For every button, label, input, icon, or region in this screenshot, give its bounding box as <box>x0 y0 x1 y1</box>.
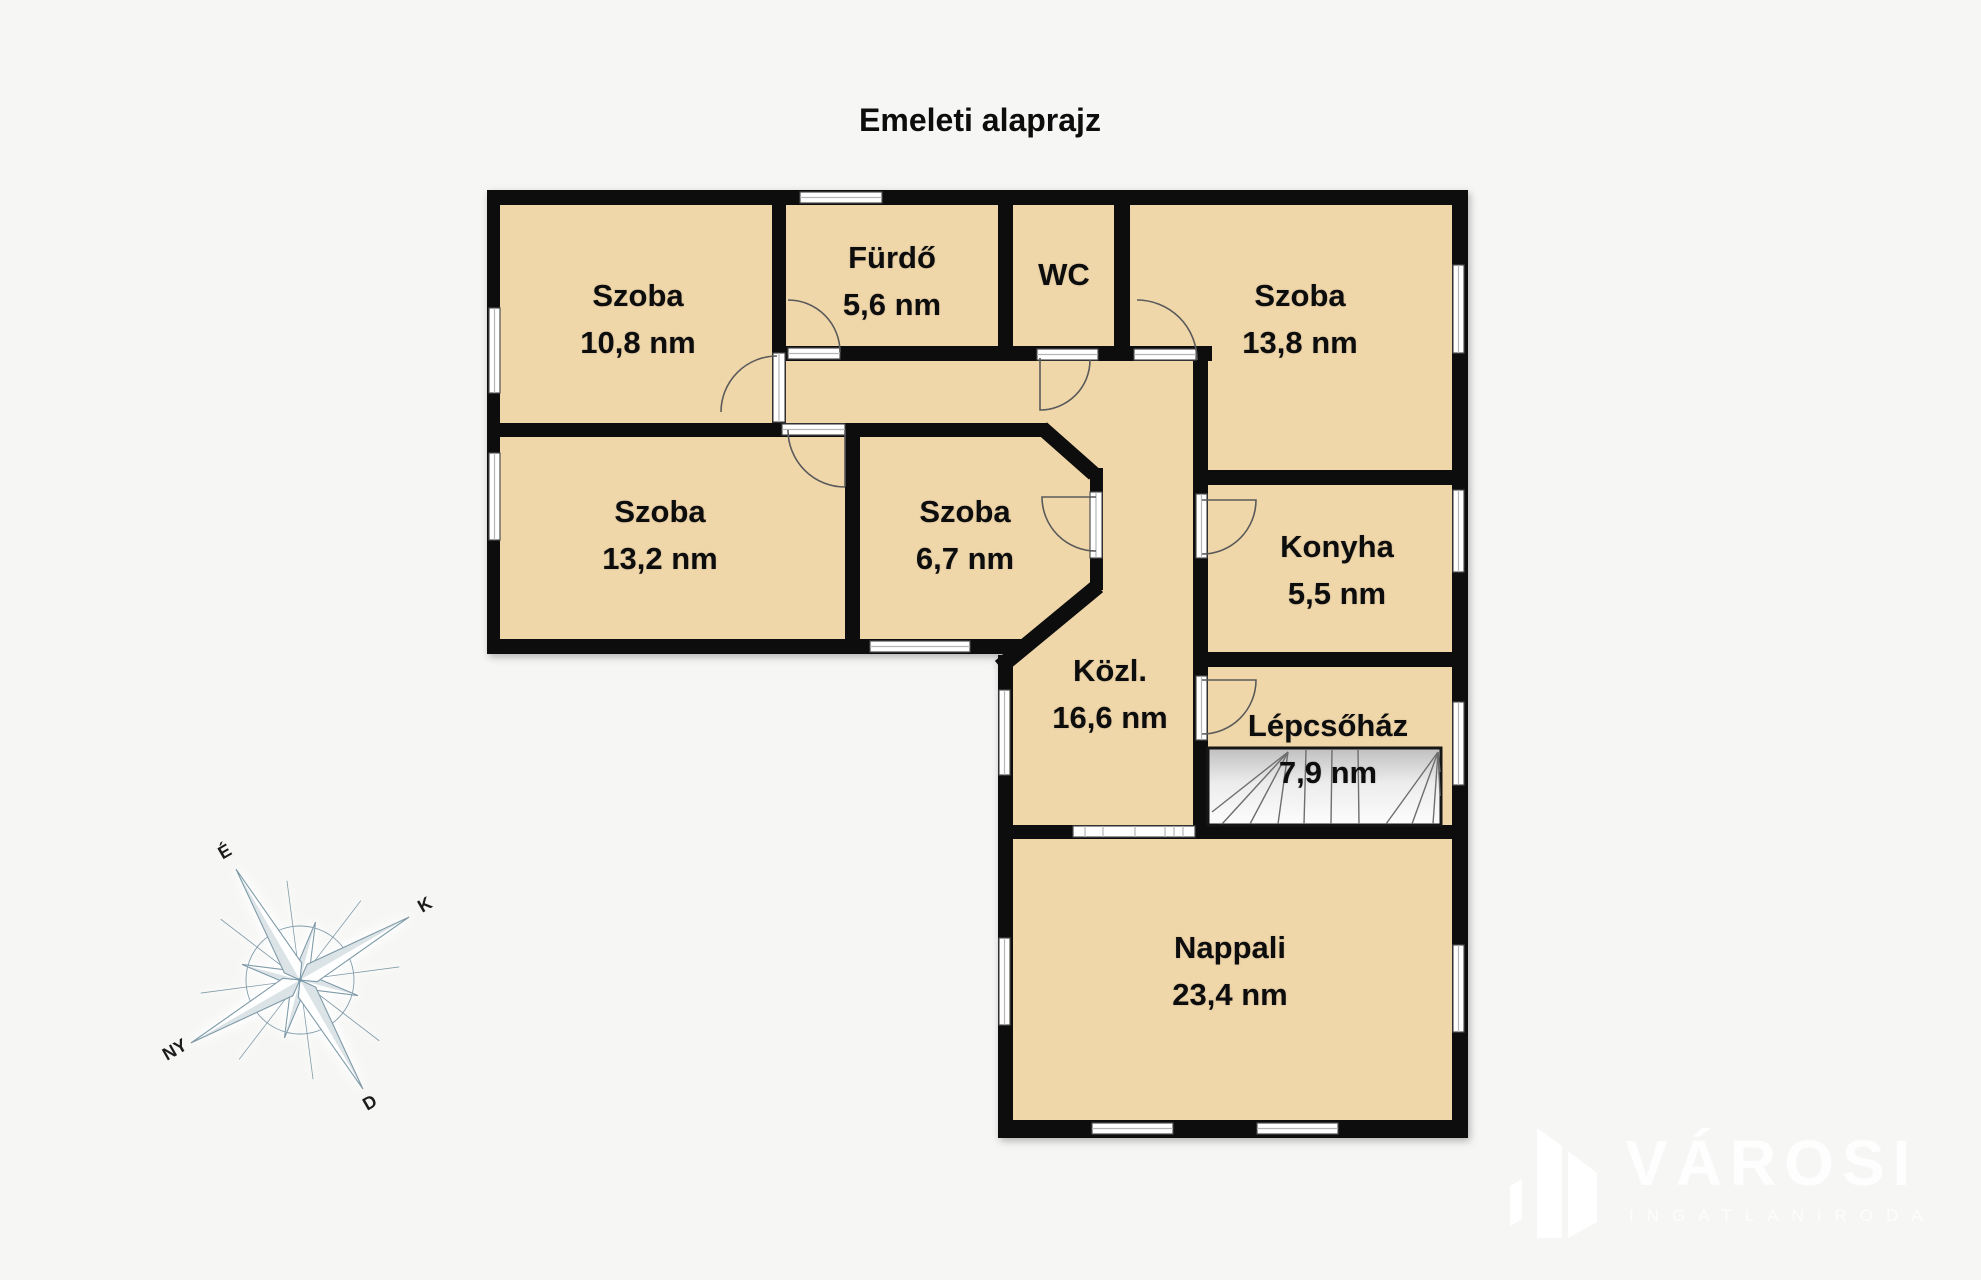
room-name: Szoba <box>916 488 1014 535</box>
room-name: Közl. <box>1052 647 1167 694</box>
compass-rose <box>127 806 472 1152</box>
door-szoba132 <box>782 424 845 435</box>
window-bottom-nappali-1 <box>1092 1123 1173 1134</box>
room-label-szoba-6-7: Szoba 6,7 nm <box>916 488 1014 582</box>
window-left-szoba132 <box>489 453 500 540</box>
room-name: Nappali <box>1172 924 1287 971</box>
room-label-furdo: Fürdő 5,6 nm <box>843 234 941 328</box>
door-szoba67 <box>1090 492 1102 558</box>
room-name: Lépcsőház <box>1248 702 1408 749</box>
door-konyha <box>1196 494 1207 558</box>
room-name: Szoba <box>1242 272 1357 319</box>
window-bottom-szoba67 <box>870 641 970 652</box>
room-area: 23,4 nm <box>1172 971 1287 1018</box>
room-name: Szoba <box>580 272 695 319</box>
room-name: Konyha <box>1280 523 1394 570</box>
room-label-nappali: Nappali 23,4 nm <box>1172 924 1287 1018</box>
room-area: 7,9 nm <box>1248 749 1408 796</box>
room-label-wc: WC <box>1038 251 1090 298</box>
window-right-nappali <box>1453 945 1464 1032</box>
watermark-subtitle: INGATLANIRODA <box>1629 1206 1936 1226</box>
door-szoba138 <box>1134 349 1196 360</box>
window-bottom-nappali-2 <box>1257 1123 1338 1134</box>
door-furdo <box>788 348 840 359</box>
room-area: 5,5 nm <box>1280 570 1394 617</box>
room-label-konyha: Konyha 5,5 nm <box>1280 523 1394 617</box>
room-name: Szoba <box>602 488 717 535</box>
floorplan-drawing <box>0 0 1981 1280</box>
room-label-kozlekedo: Közl. 16,6 nm <box>1052 647 1167 741</box>
window-top-furdo <box>800 192 882 203</box>
room-name: Fürdő <box>843 234 941 281</box>
door-lepcsohaz <box>1196 676 1207 740</box>
room-label-szoba-10-8: Szoba 10,8 nm <box>580 272 695 366</box>
window-right-lepcsohaz <box>1453 702 1464 785</box>
room-area: 13,8 nm <box>1242 319 1357 366</box>
glazed-partition <box>1073 826 1195 837</box>
room-area: 6,7 nm <box>916 535 1014 582</box>
door-szoba108 <box>773 353 785 422</box>
room-label-szoba-13-8: Szoba 13,8 nm <box>1242 272 1357 366</box>
page-title: Emeleti alaprajz <box>859 102 1101 139</box>
window-left-nappali <box>999 938 1010 1025</box>
window-right-konyha <box>1453 490 1464 572</box>
room-label-lepcsohaz: Lépcsőház 7,9 nm <box>1248 702 1408 796</box>
varosi-logo-icon <box>1510 1128 1597 1238</box>
room-name: WC <box>1038 251 1090 298</box>
room-area: 10,8 nm <box>580 319 695 366</box>
room-area: 16,6 nm <box>1052 694 1167 741</box>
room-area: 13,2 nm <box>602 535 717 582</box>
window-left-szoba108 <box>489 308 500 393</box>
door-wc <box>1037 349 1098 360</box>
room-area: 5,6 nm <box>843 281 941 328</box>
room-label-szoba-13-2: Szoba 13,2 nm <box>602 488 717 582</box>
window-left-kozlekedo <box>999 690 1010 775</box>
floorplan-page: Emeleti alaprajz Szoba 10,8 nm Fürdő 5,6… <box>0 0 1981 1280</box>
window-right-szoba138 <box>1453 265 1464 353</box>
watermark-brand: VÁROSI <box>1625 1126 1918 1200</box>
